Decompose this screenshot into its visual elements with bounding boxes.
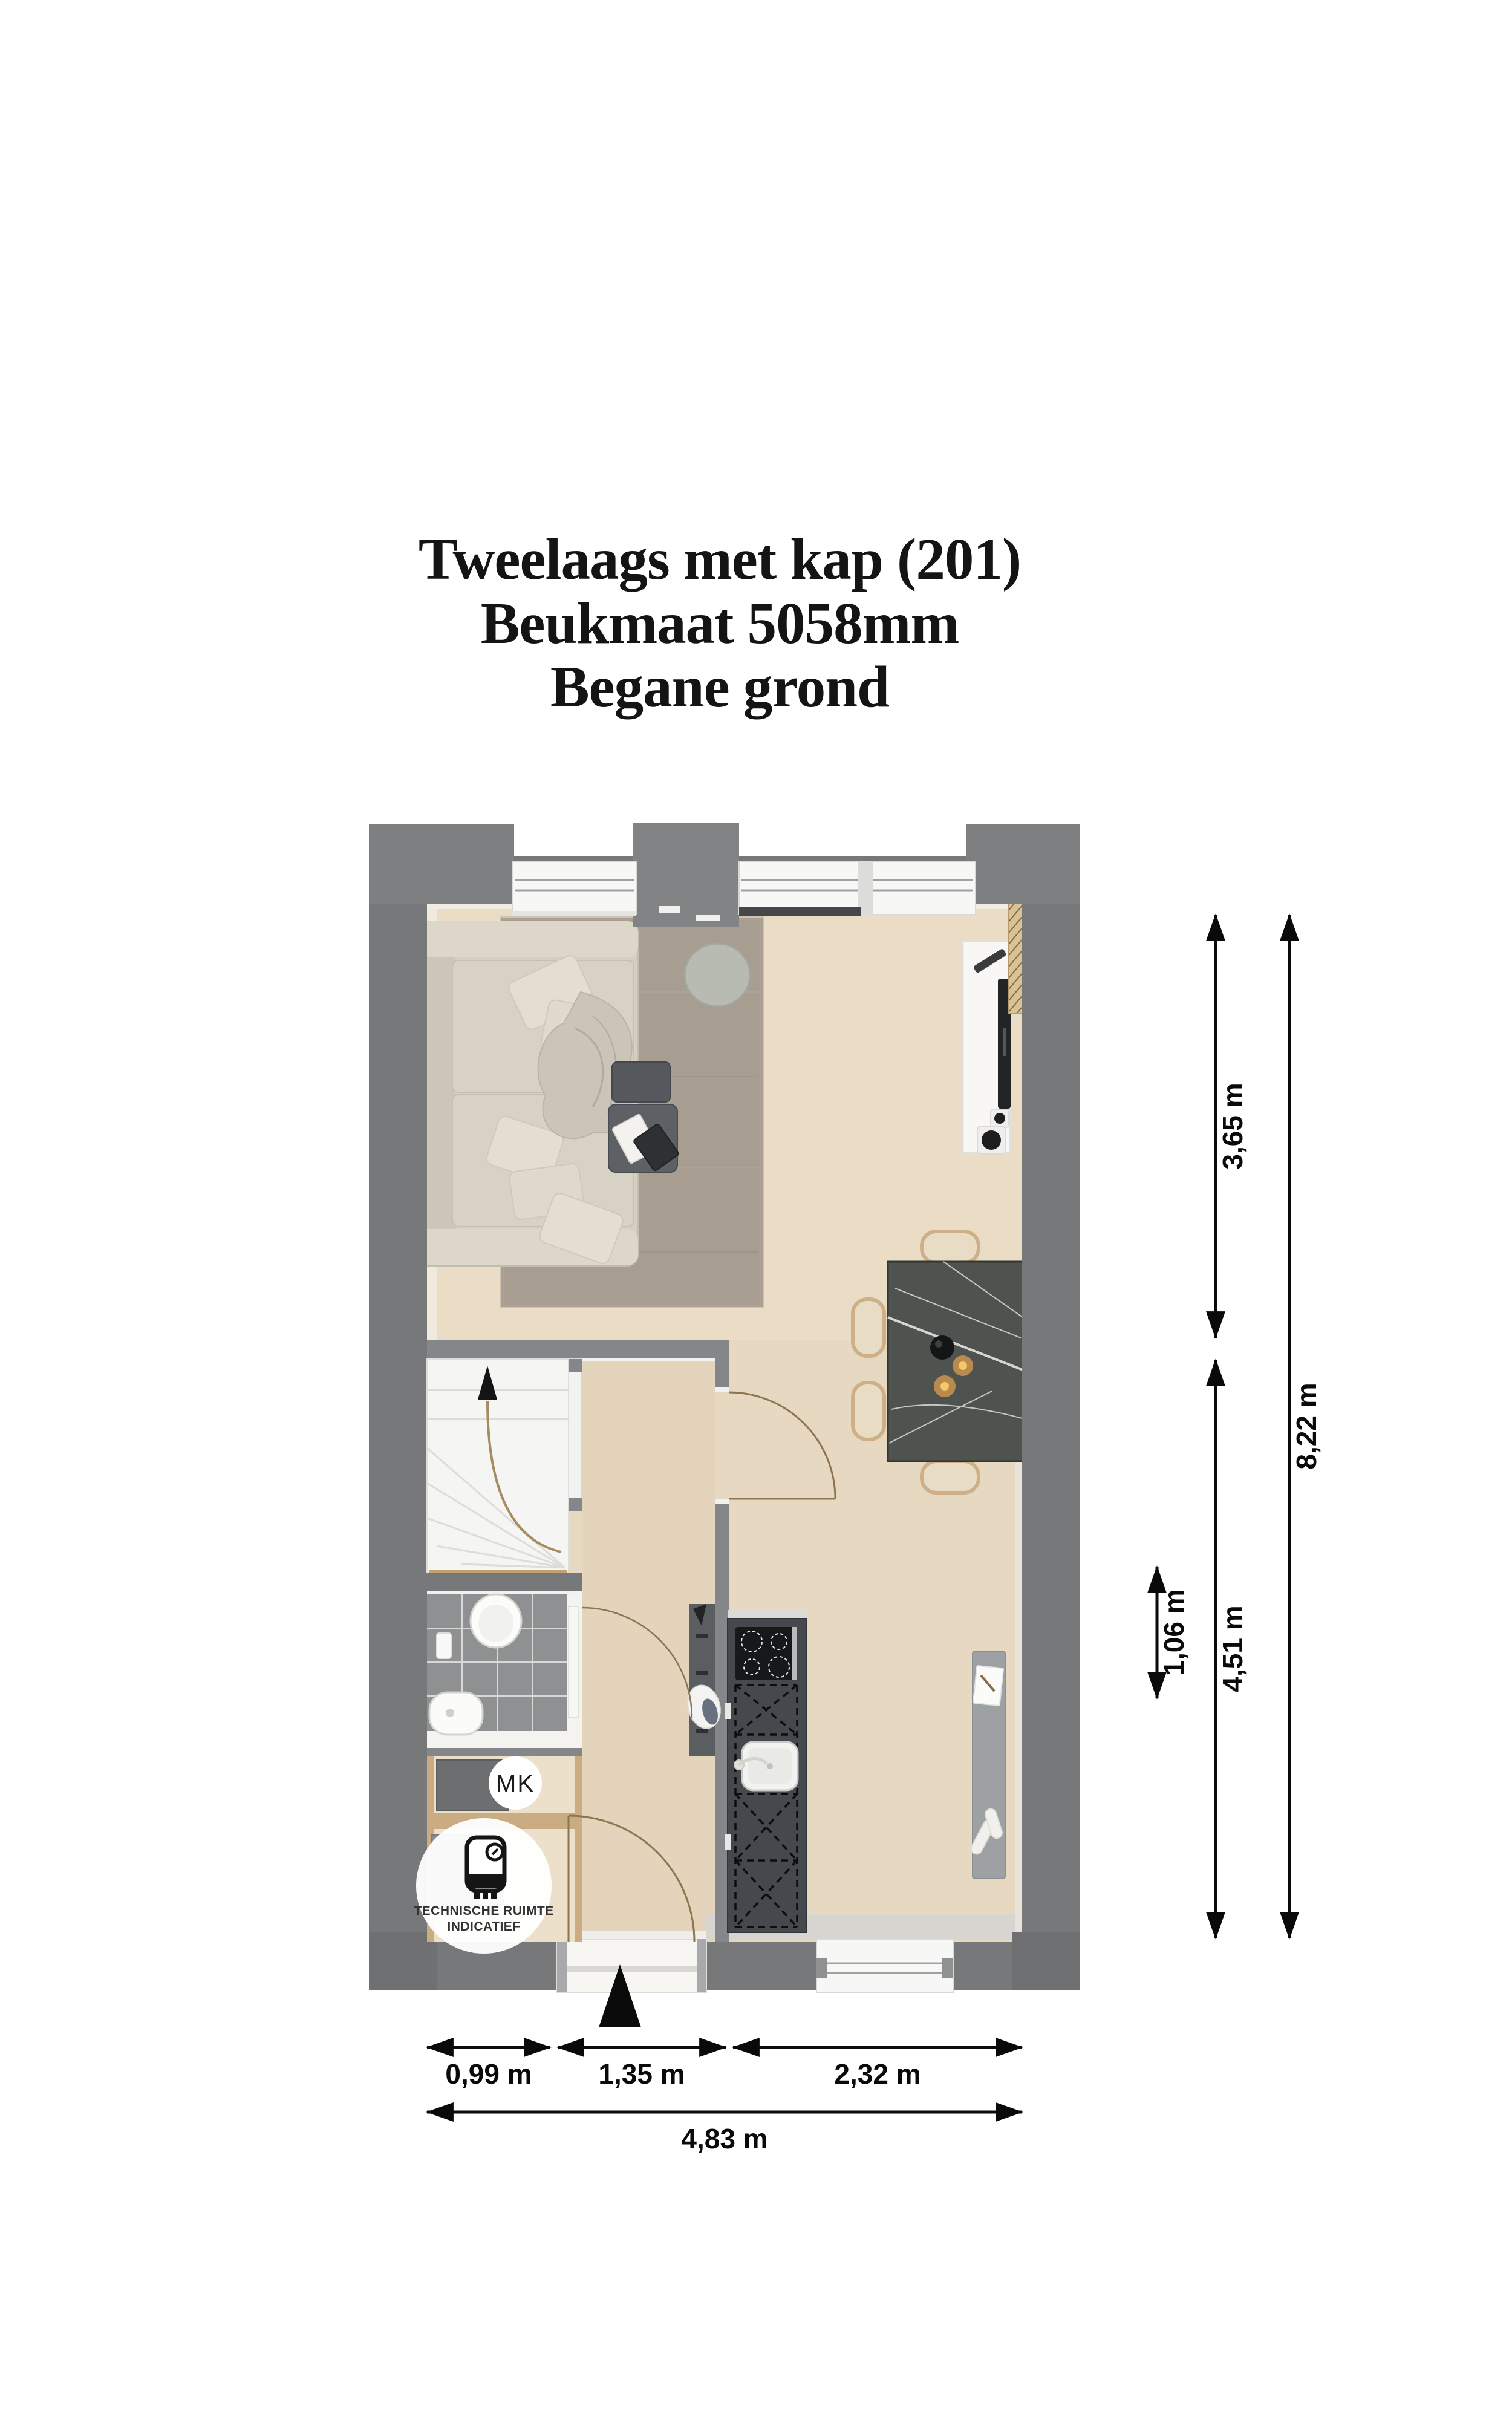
dining-chair-left-2 [853, 1383, 884, 1439]
console-table [969, 1651, 1005, 1879]
dining-chair-left-1 [853, 1299, 884, 1356]
coffee-table [608, 1062, 679, 1172]
floorplan-drawing: MK TECHNISCHE RUIMTE INDICATIEF [0, 0, 1512, 2429]
toilet-flush-plate [437, 1633, 451, 1658]
washbasin [429, 1692, 483, 1735]
wall-stairs-hall [569, 1359, 582, 1510]
window-top-left [512, 861, 636, 916]
tech-label-line2: INDICATIEF [447, 1920, 520, 1934]
speaker-small [994, 1113, 1005, 1124]
bowl [930, 1335, 954, 1360]
tech-label-line1: TECHNISCHE RUIMTE [414, 1904, 553, 1918]
pouf [685, 944, 750, 1006]
toilet-door [569, 1606, 578, 1718]
dim-label-106: 1,06 m [1158, 1589, 1190, 1675]
door-opening-living [715, 1392, 729, 1499]
dim-label-822: 8,22 m [1291, 1383, 1322, 1469]
window-top-right [739, 861, 976, 916]
coat-rack [689, 1604, 715, 1756]
wall-right [1022, 856, 1080, 1990]
tv-sideboard [963, 941, 1011, 1154]
mk-label: MK [496, 1770, 535, 1797]
dim-label-232: 2,32 m [834, 2058, 921, 2090]
dim-label-451: 4,51 m [1217, 1605, 1248, 1692]
window-bottom-kitchen [816, 1939, 953, 1992]
floorplan-page: Tweelaags met kap (201) Beukmaat 5058mm … [0, 0, 1512, 2429]
dining-chair-bottom [922, 1461, 979, 1493]
dim-label-365: 3,65 m [1217, 1083, 1248, 1169]
wall-left [369, 856, 427, 1990]
stairs [427, 1359, 569, 1573]
boiler-icon [467, 1837, 504, 1899]
sofa [413, 921, 638, 1266]
dim-label-483: 4,83 m [681, 2123, 767, 2154]
wall-pier-center [633, 823, 739, 927]
dim-label-099: 0,99 m [445, 2058, 532, 2090]
mk-badge: MK [489, 1756, 542, 1810]
toilet-room [427, 1573, 582, 1748]
dim-label-135: 1,35 m [598, 2058, 685, 2090]
speaker-large [982, 1130, 1001, 1150]
wall-living-hall [427, 1340, 729, 1359]
dining-chair-top [922, 1231, 979, 1263]
